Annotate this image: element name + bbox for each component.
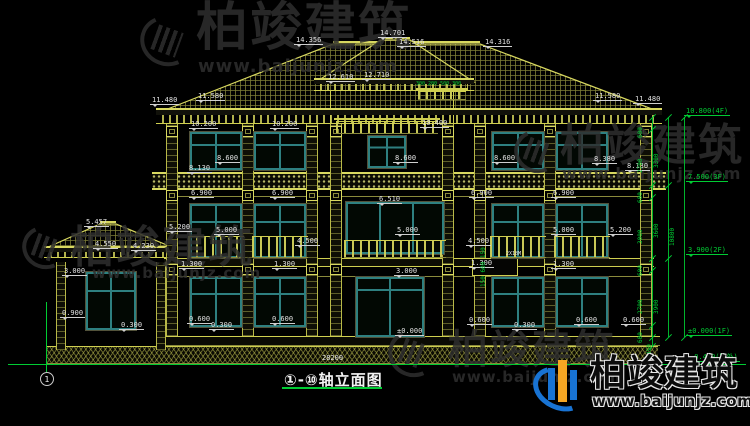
level-dim-label: 5.200 [167,223,192,232]
beam-line [166,196,652,197]
level-dim-label: 6.900 [469,189,494,198]
window-3f [556,132,608,170]
level-dim-label: 2X18M [504,250,523,258]
level-dim-label: 6.900 [551,189,576,198]
pilaster-capital [166,190,178,201]
main-eave-cornice [156,108,662,115]
chain-dim-label: 10800 [669,226,677,248]
pilaster [474,124,486,336]
level-dim-label: 0.600 [467,316,492,325]
level-dim-label: 1.300 [272,260,297,269]
level-dim-label: 11.580 [593,92,622,101]
pilaster [330,124,342,336]
level-dim-label: 4.230 [131,242,156,251]
floor-band [164,258,654,267]
pilaster-capital [242,190,254,201]
chain-dim-label: 600 [637,330,645,345]
chain-dim-label: 2700 [637,157,645,175]
level-dim-label: 11.480 [150,96,179,105]
level-dim-label: 10.200 [270,120,299,129]
chain-dim-label: 600 [637,125,645,140]
level-dim-label: 1.300 [551,260,576,269]
level-dim-label: 4.550 [93,240,118,249]
level-dim-label: ±0.000 [395,327,424,336]
roof-terrace-rail [416,88,468,90]
level-dim-label: 8.600 [215,154,240,163]
window-3f [254,132,306,170]
cad-elevation-canvas: 柏竣建筑 www.baijunjz.com 柏竣建筑 www.baijunjz.… [0,0,750,426]
pilaster-capital [242,126,254,137]
pilaster [306,124,318,336]
axis-bubble-1: 1 [40,372,54,386]
balcony-rail [554,236,610,258]
dim-chain-line [684,117,685,337]
green-level-label: 7.500(3F) [686,173,728,182]
annex-pilaster [156,262,166,350]
chain-dim-label: 3900 [653,298,661,316]
title-underline [282,387,382,389]
pilaster-capital [442,264,454,275]
pilaster-capital [330,190,342,201]
eave-line [44,257,176,258]
level-dim-label: 0.600 [621,316,646,325]
level-dim-label: 6.900 [189,189,214,198]
level-dim-label: 6.510 [377,195,402,204]
level-dim-label: 14.516 [397,38,426,47]
pilaster-capital [166,264,178,275]
level-dim-label: 0.300 [119,321,144,330]
level-dim-label: 12.710 [362,71,391,80]
level-dim-label: 14.701 [378,29,407,38]
level-dim-label: 3.000 [394,267,419,276]
level-dim-label: 11.580 [196,92,225,101]
level-dim-label: 0.600 [574,316,599,325]
brand-title: 柏竣建筑 [590,356,738,392]
baijun-logo-icon [532,356,592,418]
chain-dim-label: 150 600 150 [480,245,488,289]
green-level-label: 3.900(2F) [686,246,728,255]
tower-balcony-rail [344,240,446,258]
level-dim-label: 5.200 [608,226,633,235]
chain-dim-label: 3000 [637,228,645,246]
pilaster-capital [306,264,318,275]
brand-site: www.baijunjz.com [592,394,750,409]
level-dim-label: 5.000 [214,226,239,235]
pilaster-capital [242,264,254,275]
roof-terrace-balusters [418,91,466,100]
level-dim-label: 8.600 [492,154,517,163]
level-dim-label: 5.000 [551,226,576,235]
pilaster-capital [166,126,178,137]
green-level-label: ±0.000(1F) [686,327,732,336]
level-dim-label: 5.457 [84,218,109,227]
axis-line [46,302,47,372]
level-dim-label: 10.400 [420,119,449,128]
level-dim-label: 0.300 [512,321,537,330]
chain-dim-label: 3300 [653,152,661,170]
chain-dim-label: 2700 [637,298,645,316]
chain-dim-label: 600 [637,263,645,278]
pilaster-capital [306,126,318,137]
pilaster [242,124,254,336]
level-dim-label: 5.000 [395,226,420,235]
floor-cornice-band [152,172,666,190]
level-dim-label: 1.300 [179,260,204,269]
level-dim-label: 12.610 [326,73,355,82]
plinth-band [156,336,660,346]
level-dim-label: 8.600 [393,154,418,163]
pilaster-capital [330,264,342,275]
level-dim-label: 14.316 [483,38,512,47]
pilaster-capital [474,126,486,137]
level-dim-label: 11.480 [633,95,662,104]
level-dim-label: 8.380 [592,155,617,164]
level-dim-label: 0.300 [209,321,234,330]
level-dim-label: 4.500 [295,237,320,246]
level-dim-label: 6.900 [270,189,295,198]
level-dim-label: 10.200 [189,120,218,129]
level-dim-label: 14.356 [294,36,323,45]
level-dim-label: 3.000 [62,267,87,276]
chain-dim-label: 3600 [653,222,661,240]
chain-dim-label: 600 [637,190,645,205]
level-dim-label: 0.900 [60,309,85,318]
pilaster-capital [442,190,454,201]
level-dim-label: 0.600 [270,315,295,324]
level-dim-label: 28200 [320,354,345,362]
green-level-label: 10.800(4F) [684,107,730,116]
window-1f [492,277,544,327]
pilaster-capital [306,190,318,201]
green-level-label: 300 200 500 300 [414,80,463,88]
level-dim-label: 8.130 [187,164,212,173]
pilaster-capital [544,126,556,137]
